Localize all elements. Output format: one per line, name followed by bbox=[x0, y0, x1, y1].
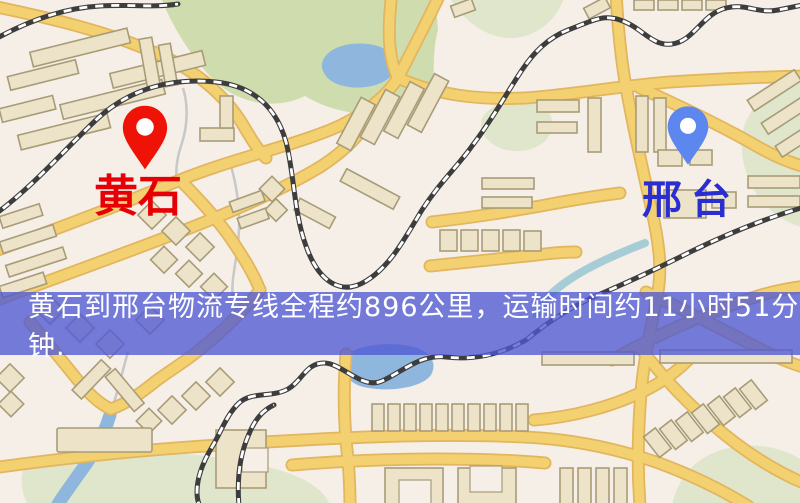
origin-pin-icon[interactable] bbox=[121, 102, 169, 174]
route-info-banner: 黄石到邢台物流专线全程约896公里，运输时间约11小时51分钟. bbox=[0, 292, 800, 355]
route-info-text: 黄石到邢台物流专线全程约896公里，运输时间约11小时51分钟. bbox=[28, 285, 800, 363]
destination-city-label: 邢台 bbox=[642, 180, 740, 220]
logistics-route-map[interactable]: 黄石 邢台 黄石到邢台物流专线全程约896公里，运输时间约11小时51分钟. bbox=[0, 0, 800, 503]
origin-city-label: 黄石 bbox=[94, 175, 182, 219]
destination-pin-icon[interactable] bbox=[666, 103, 710, 169]
map-canvas[interactable] bbox=[0, 0, 800, 503]
